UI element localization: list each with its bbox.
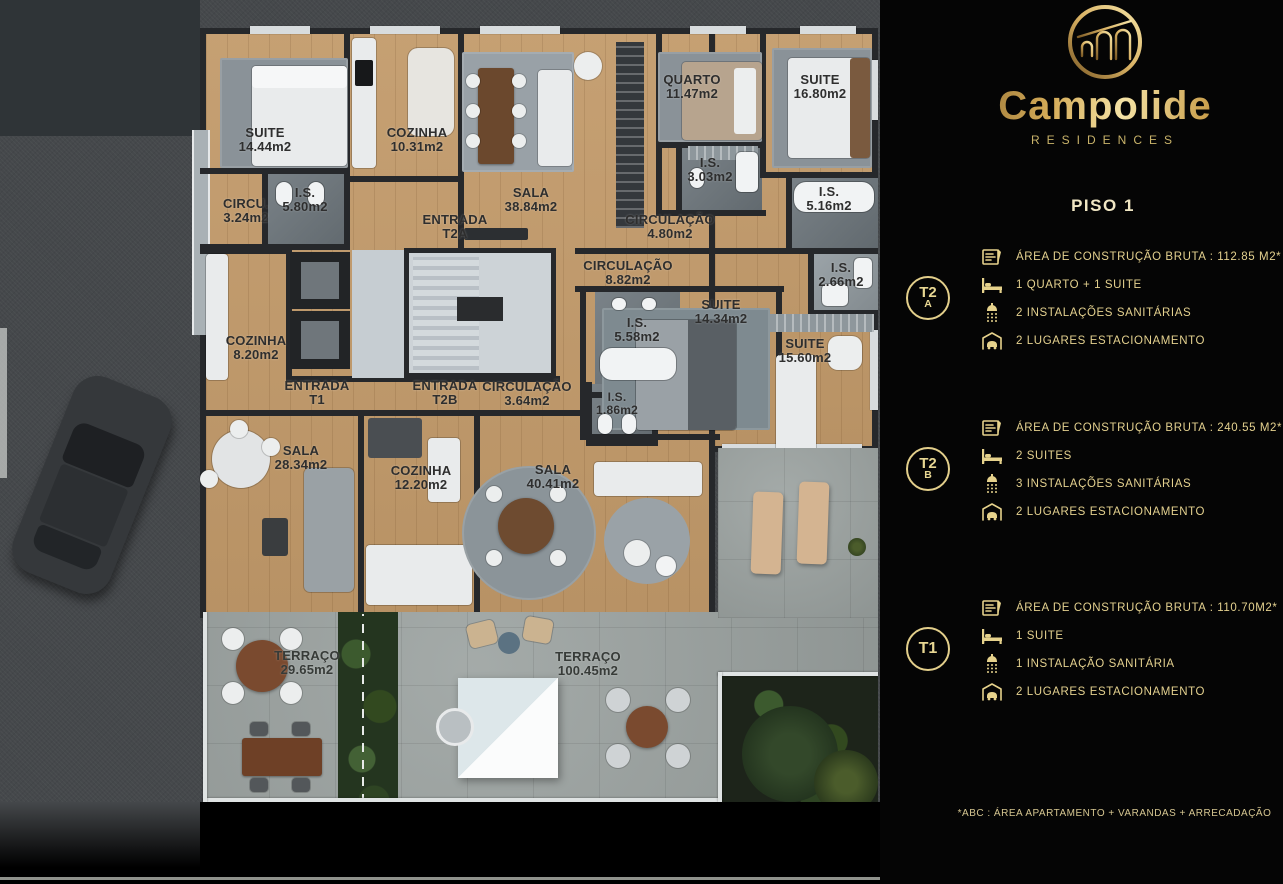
bidet: [622, 414, 636, 434]
footnote: *ABC : ÁREA APARTAMENTO + VARANDAS + ARR…: [946, 808, 1283, 819]
brand-name: Campolide: [927, 84, 1283, 129]
terrace-dining-table: [242, 738, 322, 776]
room-label-is-516: I.S.5.16m2: [806, 185, 851, 213]
kitchen-counter-1031: [352, 38, 376, 168]
wall: [676, 148, 682, 214]
street-dark-patch: [0, 0, 200, 136]
chair: [486, 550, 502, 566]
chair: [466, 104, 480, 118]
terrace-chair: [250, 778, 268, 792]
wall: [200, 410, 590, 416]
terrace-chair: [522, 616, 554, 644]
room-label-suite-1680: SUITE16.80m2: [794, 73, 847, 101]
floorplan-icon: [980, 598, 1004, 618]
garage-icon: [980, 682, 1004, 702]
floorplan-marketing-sheet: SUITE14.44m2 COZINHA10.31m2 CIRCU.3.24m2…: [0, 0, 1283, 884]
chair: [466, 134, 480, 148]
wall: [808, 248, 814, 318]
boundary-dashed-line: [362, 614, 364, 820]
spec-area: ÁREA DE CONSTRUÇÃO BRUTA : 110.70M2*: [980, 600, 1277, 615]
room-label-cozinha-1031: COZINHA10.31m2: [387, 126, 448, 154]
bed-headboard: [850, 58, 870, 158]
sofa-sala-4041: [594, 462, 702, 496]
window: [690, 26, 746, 34]
terrace-chair: [222, 682, 244, 704]
spec-bathrooms: 1 INSTALAÇÃO SANITÁRIA: [980, 656, 1277, 671]
room-label-sala-4041: SALA40.41m2: [527, 463, 580, 491]
room-label-circulacao-364: CIRCULAÇÃO3.64m2: [482, 380, 571, 408]
room-label-suite-1560: SUITE15.60m2: [779, 337, 832, 365]
wall: [766, 172, 878, 178]
shower-icon: [980, 654, 1004, 674]
elevator-shaft: [290, 311, 350, 369]
unit-specs-t1: ÁREA DE CONSTRUÇÃO BRUTA : 110.70M2* 1 S…: [980, 600, 1277, 699]
unit-badge-t2b: T2 B: [906, 447, 950, 491]
spec-parking: 2 LUGARES ESTACIONAMENTO: [980, 684, 1277, 699]
room-label-is-303: I.S.3.03m2: [687, 156, 732, 184]
room-label-sala-3884: SALA38.84m2: [505, 186, 558, 214]
chair: [512, 104, 526, 118]
chair: [230, 420, 248, 438]
terrace-parapet: [718, 672, 722, 802]
bathtub-is-558: [600, 348, 676, 380]
spec-bedrooms: 1 SUITE: [980, 628, 1277, 643]
unit-specs-t2a: ÁREA DE CONSTRUÇÃO BRUTA : 112.85 M2* 1 …: [980, 249, 1281, 348]
bed-pillows: [734, 68, 756, 134]
terrace-chair: [280, 682, 302, 704]
room-label-suite-1444: SUITE14.44m2: [239, 126, 292, 154]
toilet: [598, 414, 612, 434]
vanity: [736, 152, 758, 192]
round-dining-table-4041: [498, 498, 554, 554]
dining-table-sala-3884: [478, 68, 514, 164]
armchair: [574, 52, 602, 80]
window: [480, 26, 560, 34]
terrace-chair: [292, 778, 310, 792]
core-lobby: [352, 250, 404, 378]
bottom-shadow: [200, 802, 883, 884]
terrace-chair: [222, 628, 244, 650]
spec-area: ÁREA DE CONSTRUÇÃO BRUTA : 112.85 M2*: [980, 249, 1281, 264]
terrace-side-table: [498, 632, 520, 654]
terrace-chair: [606, 744, 630, 768]
room-label-suite-1434: SUITE14.34m2: [695, 298, 748, 326]
room-label-sala-2834: SALA28.34m2: [275, 444, 328, 472]
window: [800, 26, 856, 34]
kitchen-counter-820: [206, 254, 228, 380]
terrace-chair: [606, 688, 630, 712]
wall: [200, 168, 350, 174]
wall: [786, 172, 792, 250]
spec-bathrooms: 2 INSTALAÇÕES SANITÁRIAS: [980, 305, 1281, 320]
armchair: [828, 336, 862, 370]
sun-lounger: [797, 482, 830, 565]
stairwell: [404, 248, 556, 378]
room-label-circu-324: CIRCU.3.24m2: [223, 197, 269, 225]
bottom-shadow-street: [0, 802, 200, 884]
bed-blanket: [688, 320, 736, 430]
chair: [466, 74, 480, 88]
cooktop: [355, 60, 373, 86]
unit-badge-t2a: T2 A: [906, 276, 950, 320]
window: [870, 330, 878, 410]
sofa-sala-3884: [538, 70, 572, 166]
terrace-plant: [848, 538, 866, 556]
unit-specs-t2b: ÁREA DE CONSTRUÇÃO BRUTA : 240.55 M2* 2 …: [980, 420, 1282, 519]
side-table: [656, 556, 676, 576]
wall: [358, 412, 364, 616]
kitchen-island-1220: [368, 418, 422, 458]
room-label-terraco-10045: TERRAÇO100.45m2: [555, 650, 621, 678]
shower-icon: [980, 303, 1004, 323]
room-label-entrada-t1: ENTRADAT1: [285, 379, 350, 407]
spec-parking: 2 LUGARES ESTACIONAMENTO: [980, 333, 1281, 348]
room-label-is-186: I.S.1.86m2: [596, 391, 638, 417]
bed-icon: [980, 275, 1004, 295]
spec-bedrooms: 2 SUITES: [980, 448, 1282, 463]
terrace-chair: [292, 722, 310, 736]
elevator-cab: [301, 321, 339, 359]
armchair: [624, 540, 650, 566]
room-label-terraco-2965: TERRAÇO29.65m2: [274, 649, 340, 677]
stair-void: [457, 297, 503, 321]
terrace-parapet: [203, 612, 207, 802]
unit-card-t1: T1 ÁREA DE CONSTRUÇÃO BRUTA : 110.70M2* …: [880, 600, 1283, 699]
photo-bottom-edge: [0, 877, 883, 880]
garden-corner: [722, 676, 878, 820]
garage-icon: [980, 331, 1004, 351]
info-panel: Campolide RESIDENCES PISO 1 T2 A ÁREA DE…: [880, 0, 1283, 884]
kitchen-cabinets-1220: [366, 545, 472, 605]
window: [370, 26, 440, 34]
room-label-circulacao-882: CIRCULAÇÃO8.82m2: [583, 259, 672, 287]
terrace-fountain: [436, 708, 474, 746]
bed-icon: [980, 446, 1004, 466]
spec-area: ÁREA DE CONSTRUÇÃO BRUTA : 240.55 M2*: [980, 420, 1282, 435]
sofa-sala-2834: [304, 468, 354, 592]
chair: [550, 550, 566, 566]
spec-bathrooms: 3 INSTALAÇÕES SANITÁRIAS: [980, 476, 1282, 491]
chair: [512, 134, 526, 148]
kitchen-island-1031: [408, 48, 454, 136]
logo-aqueduct-icon: [1065, 2, 1145, 82]
room-label-quarto-1147: QUARTO11.47m2: [663, 73, 720, 101]
room-label-cozinha-1220: COZINHA12.20m2: [391, 464, 452, 492]
room-label-entrada-t2b: ENTRADAT2B: [413, 379, 478, 407]
terrace-chair: [666, 744, 690, 768]
room-label-circulacao-480: CIRCULAÇÃO4.80m2: [625, 213, 714, 241]
room-label-is-580: I.S.5.80m2: [282, 186, 327, 214]
unit-card-t2a: T2 A ÁREA DE CONSTRUÇÃO BRUTA : 112.85 M…: [880, 249, 1283, 348]
sink: [612, 298, 626, 310]
floorplan-icon: [980, 247, 1004, 267]
room-label-cozinha-820: COZINHA8.20m2: [226, 334, 287, 362]
chair: [512, 74, 526, 88]
planter-strip: [338, 612, 398, 822]
round-rug-lounge: [604, 498, 690, 584]
terrace-chair: [666, 688, 690, 712]
round-table-sala-2834: [212, 430, 270, 488]
chair: [200, 470, 218, 488]
window: [250, 26, 310, 34]
terrace-round-table: [626, 706, 668, 748]
terrace-chair: [250, 722, 268, 736]
chair: [486, 486, 502, 502]
wardrobe-strip: [616, 42, 644, 228]
unit-badge-t1: T1: [906, 627, 950, 671]
coffee-table: [262, 518, 288, 556]
garage-icon: [980, 502, 1004, 522]
elevator-cab: [301, 262, 339, 299]
sink: [642, 298, 656, 310]
floor-title: PISO 1: [923, 196, 1283, 216]
room-label-is-558: I.S.5.58m2: [614, 316, 659, 344]
floorplan-icon: [980, 418, 1004, 438]
curb-line: [0, 328, 7, 478]
car-top-view: [4, 368, 179, 602]
sun-lounger: [751, 492, 784, 575]
bed-pillows: [252, 66, 347, 88]
shower-icon: [980, 474, 1004, 494]
wall: [348, 176, 464, 182]
spec-parking: 2 LUGARES ESTACIONAMENTO: [980, 504, 1282, 519]
terrace-parapet: [718, 672, 878, 676]
terrace-chair: [280, 628, 302, 650]
spec-bedrooms: 1 QUARTO + 1 SUITE: [980, 277, 1281, 292]
room-label-entrada-t2a: ENTRADAT2A: [423, 213, 488, 241]
brand-tagline: RESIDENCES: [927, 133, 1283, 147]
elevator-shaft: [290, 252, 350, 309]
wardrobe-suite-1560: [760, 314, 874, 332]
bed-icon: [980, 626, 1004, 646]
unit-card-t2b: T2 B ÁREA DE CONSTRUÇÃO BRUTA : 240.55 M…: [880, 420, 1283, 519]
wall: [575, 248, 878, 254]
wall: [586, 440, 658, 446]
room-label-is-266: I.S.2.66m2: [818, 261, 863, 289]
